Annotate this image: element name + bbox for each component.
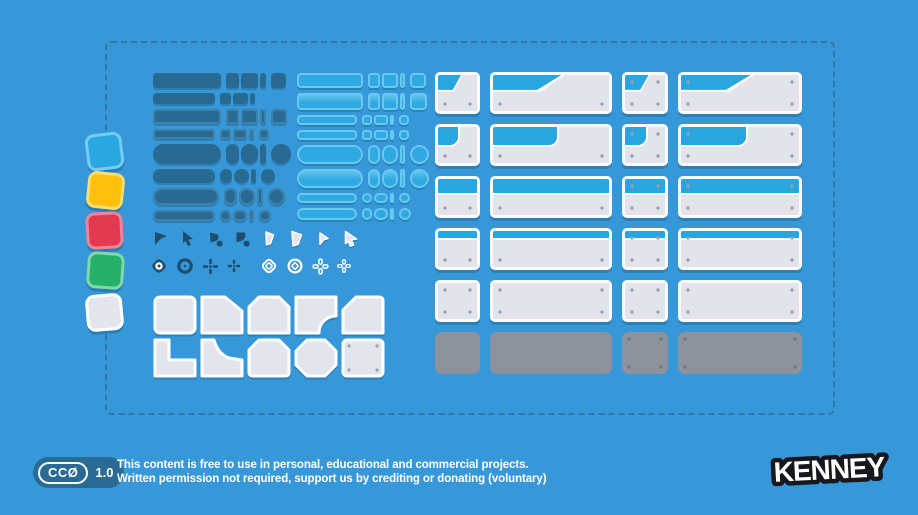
- button-row: [297, 193, 429, 203]
- panel-grey: [622, 332, 668, 374]
- cc0-label: CCØ: [38, 462, 88, 484]
- swatch-yellow-icon: [85, 170, 126, 211]
- panel-grey: [435, 332, 480, 374]
- panel-header: [625, 179, 665, 195]
- panel-diagonal-header: [678, 72, 802, 114]
- panel-header: [493, 179, 609, 195]
- kenney-logo: KENNEY: [766, 443, 892, 497]
- key-screw-panel-icon: [340, 337, 386, 379]
- light-buttons-group: [297, 73, 429, 220]
- button-row: [297, 73, 429, 88]
- button-row: [153, 93, 291, 104]
- button-row: [297, 208, 429, 220]
- cursor-pointer-square-icon: [232, 229, 252, 249]
- panel-grey: [678, 332, 802, 374]
- key-shapes-grid: [152, 294, 386, 379]
- panel-strip-header: [490, 228, 612, 270]
- panel-tab-header: [490, 124, 612, 166]
- panel-diagonal-header: [435, 72, 480, 114]
- button-row: [297, 130, 429, 140]
- key-cut-top-left-icon: [340, 294, 386, 336]
- key-cut-top-corners-icon: [246, 294, 292, 336]
- panel-header: [438, 75, 477, 92]
- crosshair-ring-icon: [175, 256, 195, 276]
- cursor-white-arrow-small-icon: [313, 229, 333, 249]
- panel-plain: [435, 280, 480, 322]
- panel-strip-header: [435, 228, 480, 270]
- panel-tab-header: [678, 124, 802, 166]
- key-l-shape-icon: [152, 337, 198, 379]
- panel-header: [493, 75, 609, 92]
- panel-header: [625, 231, 665, 240]
- button-row: [153, 169, 291, 183]
- cursor-pointer-dot-icon: [205, 229, 225, 249]
- panel-plain: [678, 280, 802, 322]
- panel-plain: [622, 280, 668, 322]
- crosshair-plus-icon: [201, 257, 220, 276]
- panel-header: [625, 127, 648, 147]
- crosshair-plus-small-icon: [226, 258, 242, 274]
- button-row: [153, 210, 291, 221]
- crosshair-ring-outline-icon: [285, 256, 305, 276]
- cursor-white-kite-icon: [259, 229, 279, 249]
- panel-diagonal-header: [490, 72, 612, 114]
- panel-header: [625, 75, 665, 92]
- button-row: [297, 169, 429, 188]
- crosshair-plus-outline-small-icon: [336, 258, 352, 274]
- panel-header: [681, 231, 799, 240]
- crosshair-diamond-filled-icon: [149, 256, 169, 276]
- swatch-red-icon: [85, 211, 124, 250]
- panel-half-header: [490, 176, 612, 218]
- panel-header: [438, 179, 477, 195]
- crosshair-plus-outline-icon: [311, 257, 330, 276]
- panel-tab-header: [435, 124, 480, 166]
- panel-header: [681, 179, 799, 195]
- key-octagon-icon: [293, 337, 339, 379]
- panel-header: [438, 127, 460, 147]
- svg-text:KENNEY: KENNEY: [773, 451, 886, 488]
- panel-half-header: [435, 176, 480, 218]
- panel-strip-header: [622, 228, 668, 270]
- dark-buttons-group: [153, 73, 291, 221]
- panels-grid: [435, 72, 802, 374]
- panel-header: [493, 127, 559, 147]
- key-notch-bottom-right-icon: [293, 294, 339, 336]
- cursor-flag-icon: [151, 229, 171, 249]
- button-row: [297, 93, 429, 110]
- panel-strip-header: [678, 228, 802, 270]
- panel-header: [681, 127, 748, 147]
- license-line-2: Written permission not required, support…: [117, 473, 546, 487]
- license-version: 1.0: [95, 465, 113, 480]
- cursor-white-arrow-icon: [340, 229, 360, 249]
- panel-grey: [490, 332, 612, 374]
- button-row: [153, 144, 291, 164]
- swatch-green-icon: [86, 251, 125, 290]
- license-text: This content is free to use in personal,…: [117, 459, 546, 486]
- crosshair-diamond-outline-icon: [259, 256, 279, 276]
- panel-half-header: [622, 176, 668, 218]
- swatch-white-icon: [84, 292, 124, 332]
- key-hexagon-icon: [246, 337, 292, 379]
- key-cut-top-right-icon: [199, 294, 245, 336]
- panel-plain: [490, 280, 612, 322]
- panel-tab-header: [622, 124, 668, 166]
- cursor-arrow-icon: [178, 229, 198, 249]
- panel-diagonal-header: [622, 72, 668, 114]
- panel-header: [493, 231, 609, 240]
- cursor-white-kite-large-icon: [286, 229, 306, 249]
- swatch-blue-icon: [84, 131, 125, 172]
- button-row: [153, 188, 291, 205]
- license-line-1: This content is free to use in personal,…: [117, 459, 546, 473]
- crosshairs-row: [149, 256, 352, 276]
- cc0-license-badge: CCØ 1.0: [33, 457, 124, 488]
- panel-header: [438, 231, 477, 240]
- button-row: [297, 145, 429, 164]
- key-l-slope-icon: [199, 337, 245, 379]
- cursors-row: [151, 229, 360, 249]
- button-row: [297, 115, 429, 125]
- button-row: [153, 109, 291, 124]
- panel-half-header: [678, 176, 802, 218]
- button-row: [153, 129, 291, 139]
- panel-header: [681, 75, 799, 92]
- key-square-icon: [152, 294, 198, 336]
- button-row: [153, 73, 291, 88]
